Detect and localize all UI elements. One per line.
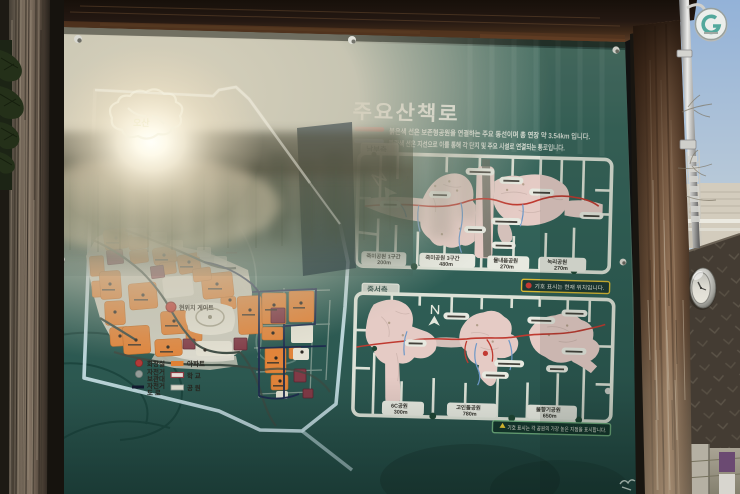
svg-text:오산: 오산 — [133, 117, 150, 128]
